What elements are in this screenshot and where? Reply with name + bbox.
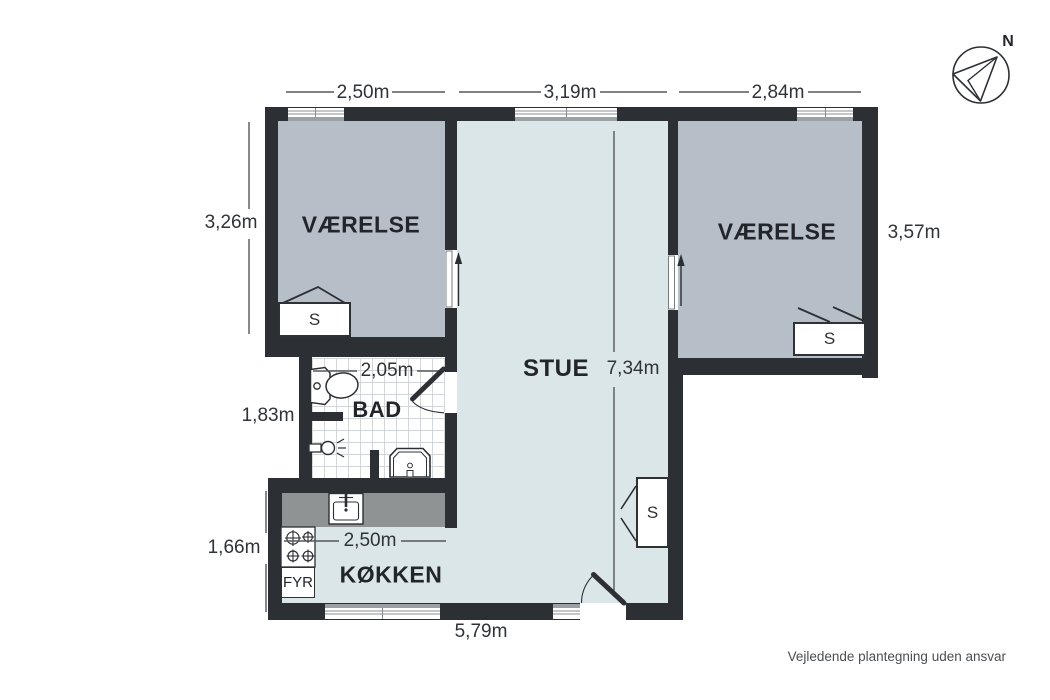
closet-label: S — [309, 310, 320, 330]
furnace-box: FYR — [281, 567, 315, 598]
dim-bedroom-left-width: 2,50m — [337, 82, 390, 104]
room-label-kitchen: KØKKEN — [340, 562, 443, 589]
wall-segment — [668, 310, 678, 360]
window-mullion — [315, 108, 316, 117]
wall-segment — [265, 107, 278, 357]
window-mullion — [382, 608, 383, 619]
window — [515, 107, 617, 121]
room-label-bathroom: BAD — [352, 397, 401, 423]
wall-segment — [668, 358, 878, 375]
dim-bathroom-width: 2,05m — [361, 360, 414, 382]
dim-kitchen-depth: 1,66m — [208, 537, 261, 559]
window-glass — [553, 608, 580, 619]
wall-segment — [445, 357, 457, 372]
wall-segment — [445, 121, 457, 250]
wall-segment — [668, 121, 678, 255]
floorplan-canvas: S S S FYR VÆRELSE VÆRELSE STUE BAD KØKKE… — [0, 0, 1050, 700]
dim-building-bottom-width: 5,79m — [455, 621, 508, 643]
dim-bedroom-left-depth: 3,26m — [205, 212, 258, 234]
dim-bedroom-right-width: 2,84m — [752, 82, 805, 104]
window-sill — [515, 117, 617, 121]
window-mullion — [566, 108, 567, 117]
closet-box: S — [636, 477, 669, 548]
window — [325, 603, 440, 620]
furnace-label: FYR — [283, 574, 313, 591]
wall-segment — [668, 358, 683, 620]
kitchen-counter — [282, 493, 445, 527]
window — [288, 107, 344, 121]
window-mullion — [825, 108, 826, 117]
window-sill — [325, 604, 440, 608]
window — [553, 603, 580, 620]
wall-segment — [445, 308, 457, 337]
compass-north-label: N — [1002, 33, 1014, 51]
dim-bedroom-right-depth: 3,57m — [888, 222, 941, 244]
closet-box: S — [793, 322, 866, 356]
bathroom-wall-stub — [370, 450, 379, 493]
wall-segment — [445, 413, 457, 528]
entry-door-opening — [580, 603, 626, 620]
wall-segment — [299, 357, 312, 478]
closet-label: S — [824, 329, 835, 349]
wall-segment — [265, 337, 457, 357]
window-sill — [797, 117, 853, 121]
room-label-living: STUE — [523, 355, 589, 383]
dim-living-depth: 7,34m — [607, 358, 660, 380]
window-sill — [553, 604, 580, 608]
window — [797, 107, 853, 121]
wall-segment — [268, 478, 282, 620]
room-label-bedroom-left: VÆRELSE — [302, 212, 421, 239]
window-sill — [288, 117, 344, 121]
dim-bathroom-depth: 1,83m — [242, 405, 295, 427]
window-glass — [288, 108, 344, 117]
wall-segment — [268, 478, 457, 493]
dim-kitchen-width: 2,50m — [344, 530, 397, 552]
closet-box: S — [278, 302, 351, 337]
closet-label: S — [647, 503, 658, 523]
disclaimer-text: Vejledende plantegning uden ansvar — [788, 649, 1006, 664]
bathroom-wall-stub — [312, 412, 343, 421]
compass-icon — [953, 47, 1009, 103]
dim-living-width: 3,19m — [544, 82, 597, 104]
room-label-bedroom-right: VÆRELSE — [718, 219, 837, 246]
